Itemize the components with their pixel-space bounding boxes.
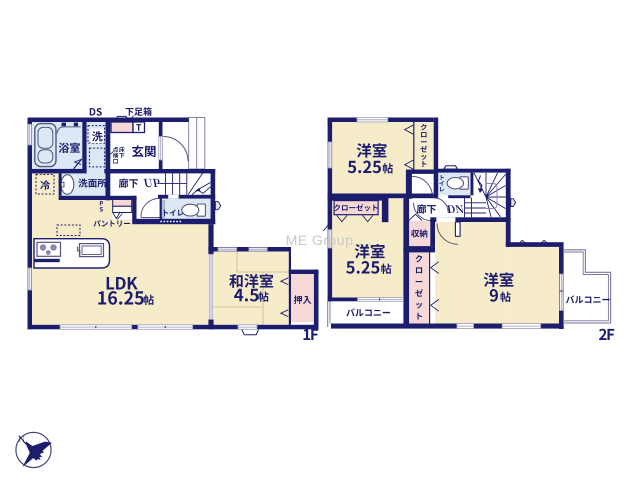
svg-text:ME Group: ME Group	[286, 233, 354, 249]
